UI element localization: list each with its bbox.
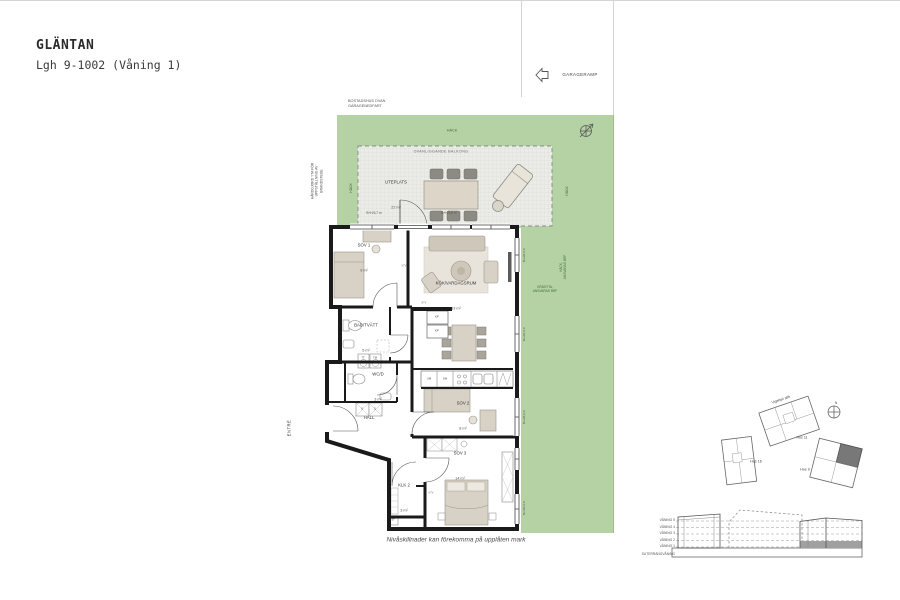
terrace-dim-mid: B+H/2,6 m [441,211,456,215]
elevation-right-building [800,518,862,548]
fire-access-note: HÅRDGJORD YTA FÖR UPPSTÄLLNING AV BRANDS… [310,163,323,200]
room-label-klk2: KLK 2 3 m² [398,462,410,535]
terrace-name: UTEPLATS [385,179,407,185]
elevation-left-building [678,514,720,548]
elevation-level-1: VÅNING 1 [605,544,675,548]
elevation-level-suterrang: SUTERRÄNGVÅNING [605,552,675,556]
siteplan-hus9 [810,438,862,487]
hus11-label: Hus 11 [796,436,807,441]
hedge-responsibility-note: HÄCK, ANSVARAS BRF [559,255,567,279]
hedge-label-right: HÄCK [565,186,569,195]
hedge-label-left: HÄCK [349,183,353,192]
balcony-above-label: OVANLIGGANDE BALKONG [414,150,469,155]
room-label-sov3: SOV 3 14 m² [454,430,467,503]
hedge-label-top: HÄCK [447,129,458,134]
siteplan-hus11 [759,396,820,446]
room-name: SOV 2 [457,400,470,406]
window-dim-1: B+H/0,9 m [523,248,527,262]
fixture-ktv-sov3: KTV [429,491,434,494]
room-label-kok-vardagsrum: KÖK/VARDAGSRUM 33 m² [436,260,477,333]
entrance-label: ENTRÉ [286,420,291,437]
terrace-side-table [493,201,504,212]
siteplan [721,396,862,488]
terrace-area: 22 m² [385,206,407,211]
apartment-plan [324,224,521,530]
fixture-g2: G [374,407,376,410]
elevation-level-5: VÅNING 5 [605,518,675,522]
hus16-label: Hus 16 [750,460,761,465]
floorplan-page: { "header": { "project": "GLÄNTAN", "apa… [0,0,900,600]
fixture-ktv-living: KTV [422,301,427,304]
north-compass-icon [828,406,840,418]
elevation-level-2: VÅNING 2 [605,538,675,542]
room-name: HALL [364,415,375,421]
above-garage-note: BOSTADSHUS OVAN GARAGENEDFART [348,99,385,109]
lawn-responsibility-note: GRÄSYTA, ANSVARAS BRF [533,285,557,293]
room-name: SOV 1 [358,242,371,248]
window-dim-3: B+H/0,9 m [523,410,527,424]
terrace-label: UTEPLATS 22 m² [385,159,407,232]
fixture-tm: TM [373,356,377,359]
fixture-dm: DM [443,377,447,380]
room-name: SOV 3 [454,450,467,456]
room-name: KÖK/VARDAGSRUM [436,280,477,286]
project-title: GLÄNTAN [36,38,94,53]
room-area: 3 m² [398,509,410,514]
room-label-hall: HALL [364,394,375,462]
room-label-sov1: SOV 1 9 m² [358,222,371,295]
room-area: 33 m² [436,307,477,312]
window-dim-2: B+H/0,9 m [523,327,527,341]
room-area: 9 m² [358,269,371,274]
hus9-label: Hus 9 [800,468,809,473]
fixture-um: UM [427,377,431,380]
garageramp-arrow-icon [536,69,548,82]
elevation-highlight-level [800,541,862,548]
elevation-base [672,548,862,557]
elevation-level-4: VÅNING 4 [605,525,675,529]
elevation-diagram [672,510,862,557]
elevation-level-3: VÅNING 3 [605,531,675,535]
north-label: N [835,401,837,405]
terrace-dim-left: B+H/3,7 m [366,211,381,215]
fixture-ktv-sov1: KTV [402,264,407,267]
elevation-gable-building [729,510,802,548]
window-dim-4: B+H/0,9 m [523,501,527,515]
fixture-kf1: K/F [435,315,439,318]
fixture-kf2: K/F [435,329,439,332]
room-area: 14 m² [454,477,467,482]
fixture-g1: G [361,407,363,410]
fixture-st: ST [391,518,394,521]
garageramp-label: GARAGERAMP [562,72,597,78]
footnote: Nivåskillnader kan förekomma på upplåten… [386,537,525,544]
terrace-table [424,181,478,209]
room-name: KLK 2 [398,482,410,488]
room-name: WC/D [372,371,383,377]
apartment-subtitle: Lgh 9-1002 (Våning 1) [36,58,181,72]
fixture-tt: TT [361,356,364,359]
room-name: BAD/TVÄTT [354,322,378,328]
